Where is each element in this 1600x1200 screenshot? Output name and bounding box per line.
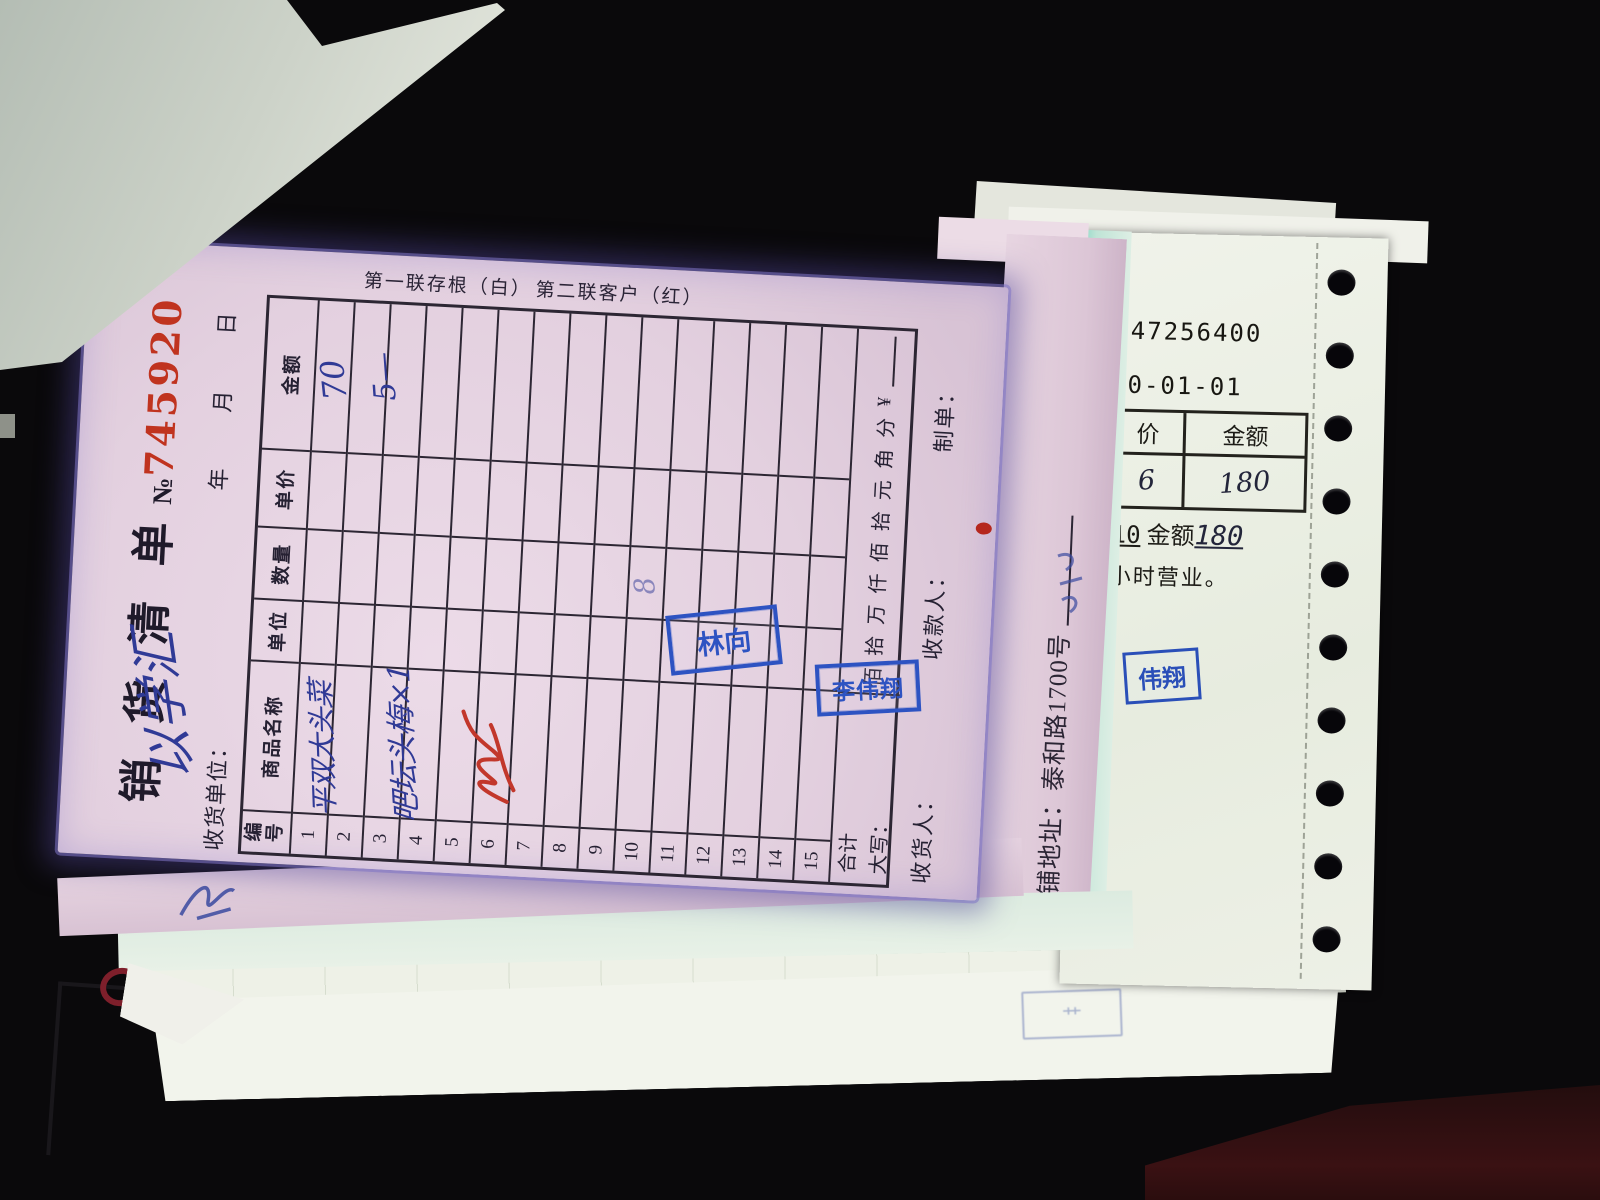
row-number: 11 [650,833,686,875]
no-label: № [147,477,178,506]
col-header: 数量 [254,528,306,602]
receipt-price-value: 6 [1137,465,1156,497]
words-label: 大写： [862,814,894,875]
receipt-col-amount: 金额 [1183,413,1306,456]
table-cell [304,530,342,604]
table-cell [337,604,374,668]
receipt-date: 20-01-01 [1111,370,1243,401]
date-line: 年 月 日 [201,308,242,491]
row3-name-handwritten: 吧坛头梅×1 [374,663,427,824]
row-number: 14 [758,838,794,880]
punch-hole [1312,926,1341,953]
table-cell [484,540,522,614]
receipt-hours-note: 小时营业。 [1108,558,1229,593]
row-number: 7 [507,825,543,867]
table-cell [775,477,813,557]
amount-word: 角 [867,448,897,469]
qty-handwritten: 8 [628,576,662,597]
row-number: 3 [363,818,399,860]
amount-word: 仟 [861,573,891,594]
copy2-note: 第二联客户（红） [519,274,720,306]
row-number: 12 [686,834,722,876]
table-cell [301,602,338,666]
no-value: 745920 [136,295,191,478]
table-cell [811,479,849,559]
row2-amount-handwritten: 5— [365,351,403,402]
faint-ink: 艹 [1062,999,1083,1029]
table-cell [595,467,633,547]
table-cell [445,610,482,674]
red-signature-scribble [446,687,532,811]
col-header-label: 单价 [269,467,298,510]
copy1-note: 第一联存根（白） [348,265,549,297]
col-header: 单价 [258,450,310,530]
receipt-amount-value: 180 [1218,466,1271,500]
amount-word: 佰 [862,542,892,563]
row-number: 2 [327,816,363,858]
table-cell [308,452,346,532]
receiver-label: 收货人： [903,787,940,885]
punch-hole [1319,634,1348,661]
amount-word: 分 [869,417,899,438]
paper-sliver [0,414,15,438]
table-cell [664,549,702,623]
table-cell [588,617,625,681]
col-header-label: 金额 [275,352,304,395]
receipt-total-line: 10 金额180 [1111,514,1243,552]
row-number: 6 [471,823,507,865]
table-cell [556,543,594,617]
table-cell [376,534,414,608]
col-header: 金额 [262,298,318,452]
table-cell [373,606,410,670]
col-header-label: 编号 [244,819,287,845]
col-header-label: 数量 [265,542,294,585]
row-number: 5 [435,821,471,863]
table-cell [340,532,378,606]
row-number: 10 [614,831,650,873]
punch-hole [1321,561,1350,588]
table-cell [520,541,558,615]
table-cell [380,456,418,536]
photo-stage: 艹 847256400 20-01-01 价 金额 6 180 10 金额180… [0,0,1600,1200]
row-number: 4 [399,819,435,861]
total-label: 合计 [831,832,862,873]
row2-name-handwritten: 平双大头菜 [299,680,344,818]
amount-word: 万 [859,604,889,625]
table-cell [592,545,630,619]
punch-hole [1314,853,1343,880]
table-cell [624,619,661,683]
receipt-amount-label: 金额 [1146,523,1195,550]
punch-hole [1327,269,1356,296]
col-header-label: 单位 [262,609,291,652]
table-cell [559,465,597,545]
col-header: 单位 [251,599,302,663]
table-cell [488,462,526,542]
table-cell [448,538,486,612]
table-cell [667,471,705,551]
row-number: 13 [722,836,758,878]
blank-amount-line [879,336,897,387]
stamp-fragment: 伟翔 [1122,647,1201,704]
row-number: 1 [291,814,327,856]
receipt-number: 847256400 [1114,316,1263,347]
preparer-label: 制单： [926,379,962,453]
row-number: 9 [578,829,614,871]
punch-hole [1326,342,1355,369]
table-cell [523,464,561,544]
total-cell: 合计大写： [830,693,900,885]
blue-scrawl [1052,548,1088,618]
table-cell [552,615,589,679]
amount-word: 拾 [864,510,894,531]
punch-hole [1317,707,1346,734]
name-stamp-2: 李伟翔 [815,659,922,716]
table-cell [631,469,669,549]
table-cell [739,475,777,555]
table-cell [412,536,450,610]
col-header-label: 商品名称 [255,694,286,779]
table-cell [807,557,845,631]
red-ink-dot [975,522,992,535]
table-cell [703,473,741,553]
faint-stamp-mark: 艹 [1021,988,1123,1039]
receipt-table: 价 金额 6 180 [1108,408,1308,512]
blue-scribble [167,872,259,932]
receipt-amount-value2: 180 [1194,520,1243,552]
amount-word: 元 [866,479,896,500]
col-header: 商品名称 [243,661,299,813]
punch-hole [1316,780,1345,807]
table-cell [452,460,490,540]
table-cell [481,611,518,675]
row1-amount-handwritten: 70 [313,358,355,402]
table-cell [344,454,382,534]
col-header: 编号 [241,811,291,853]
sales-form: 销 货 清 单№745920 年 月 日 收货单位： 以学汇 第一联存根（白） … [58,239,1009,900]
table-cell [516,613,553,677]
table-cell [416,458,454,538]
punch-hole [1322,488,1351,515]
row-number: 8 [542,827,578,869]
table-cell [409,608,446,672]
name-stamp-1: 林向 [665,604,783,675]
currency-symbol: ¥ [874,397,896,408]
punch-hole [1324,415,1353,442]
dark-red-table-corner [1145,1085,1600,1200]
amount-word: 拾 [857,635,887,656]
row-number: 15 [794,840,830,882]
cashier-label: 收款人： [915,563,952,661]
